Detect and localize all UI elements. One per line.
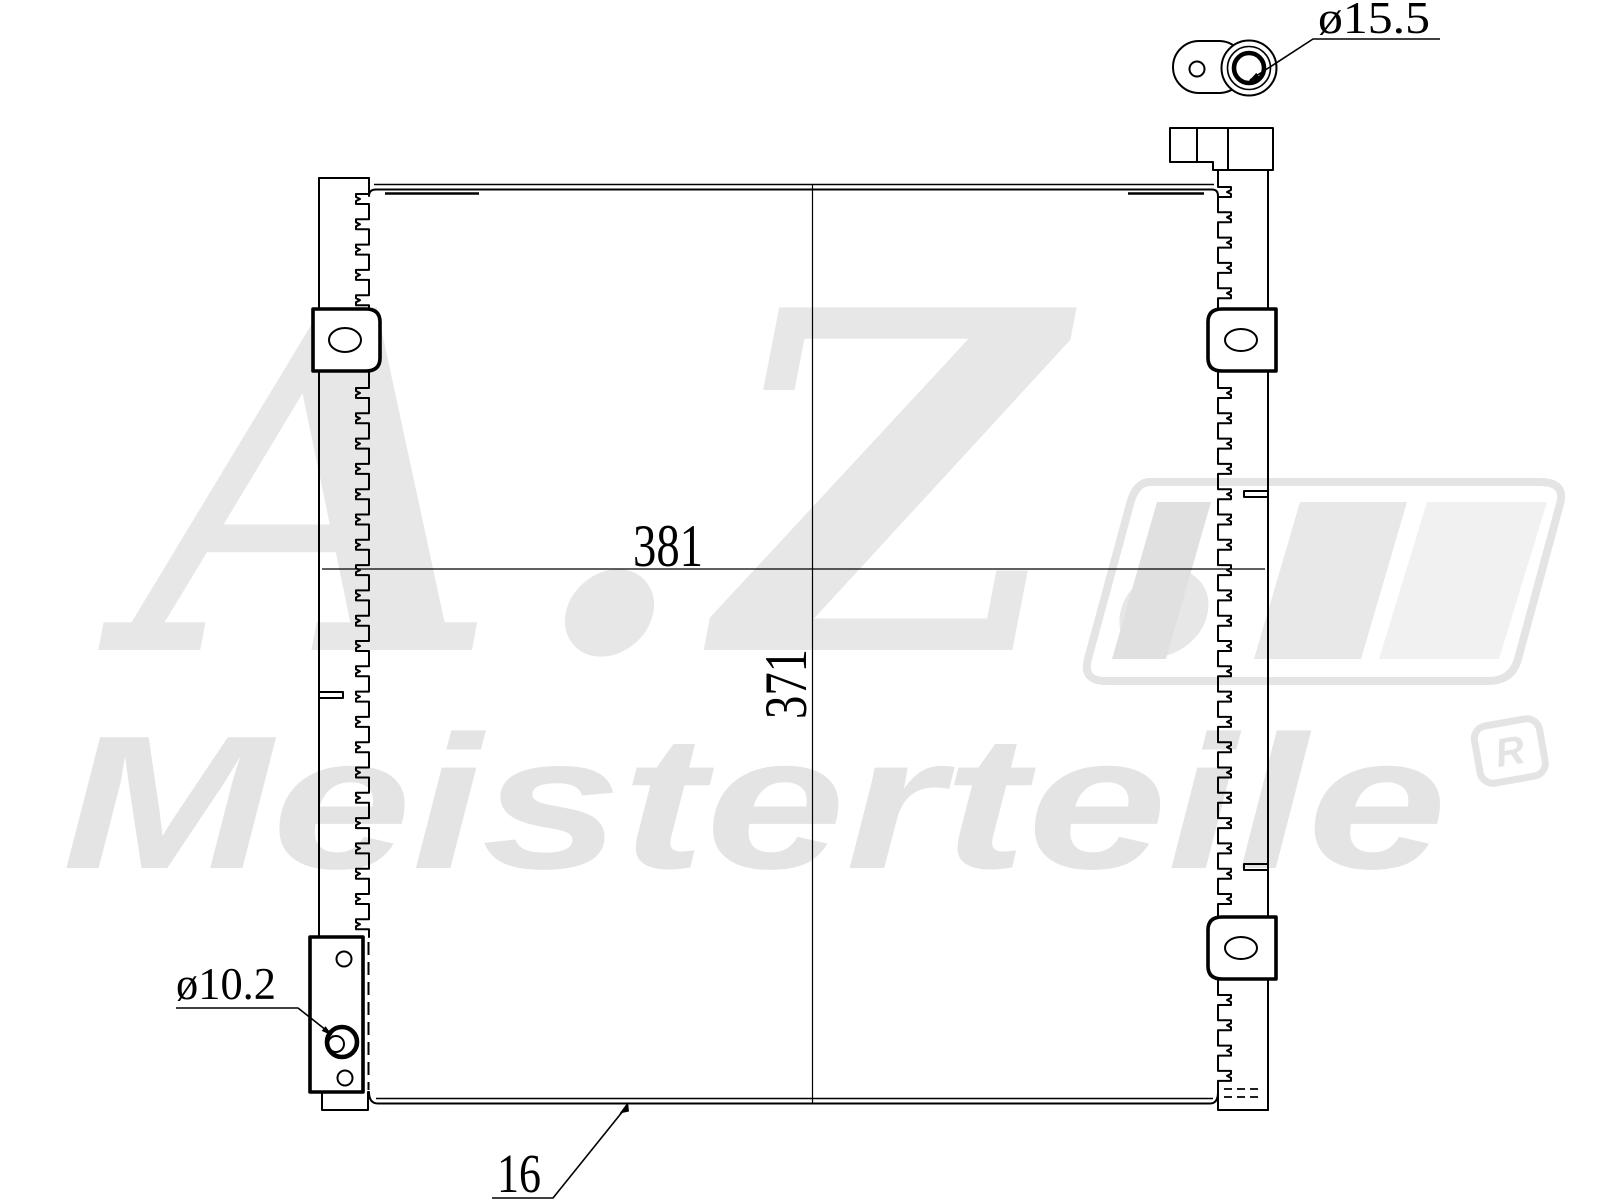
dimension-core-height: 371 — [753, 649, 819, 719]
dimension-core-width: 381 — [633, 513, 703, 579]
logo-bar-2 — [1254, 502, 1407, 659]
technical-drawing-canvas: A.Z. Meisterteile R — [0, 0, 1600, 1200]
registered-trademark-icon: R — [1472, 717, 1547, 786]
pipe-flange-fitting — [1173, 41, 1277, 96]
callout-core-depth: 16 — [492, 1102, 629, 1200]
dimension-top-port-diameter: ø15.5 — [1318, 0, 1430, 43]
condenser-drawing-page: A.Z. Meisterteile R — [0, 0, 1600, 1200]
dimension-core-depth: 16 — [497, 1143, 541, 1200]
watermark-layer: A.Z. Meisterteile R — [62, 209, 1561, 909]
watermark-wordmark-text: Meisterteile — [62, 697, 1447, 909]
mounting-bracket-bottom-right — [1208, 917, 1276, 979]
bottom-left-port-plate — [310, 937, 363, 1092]
mounting-bracket-top-right — [1208, 309, 1276, 371]
hidden-drain-slot — [1224, 1089, 1258, 1097]
dimension-bottom-port-diameter: ø10.2 — [176, 959, 276, 1009]
watermark-logo-m — [1087, 482, 1561, 681]
registered-letter: R — [1492, 728, 1528, 776]
right-fin-serration-lower — [1218, 979, 1231, 1085]
mounting-bracket-top-left — [313, 309, 380, 371]
left-plate-foot — [322, 1092, 368, 1110]
top-inlet-block — [1170, 128, 1273, 170]
